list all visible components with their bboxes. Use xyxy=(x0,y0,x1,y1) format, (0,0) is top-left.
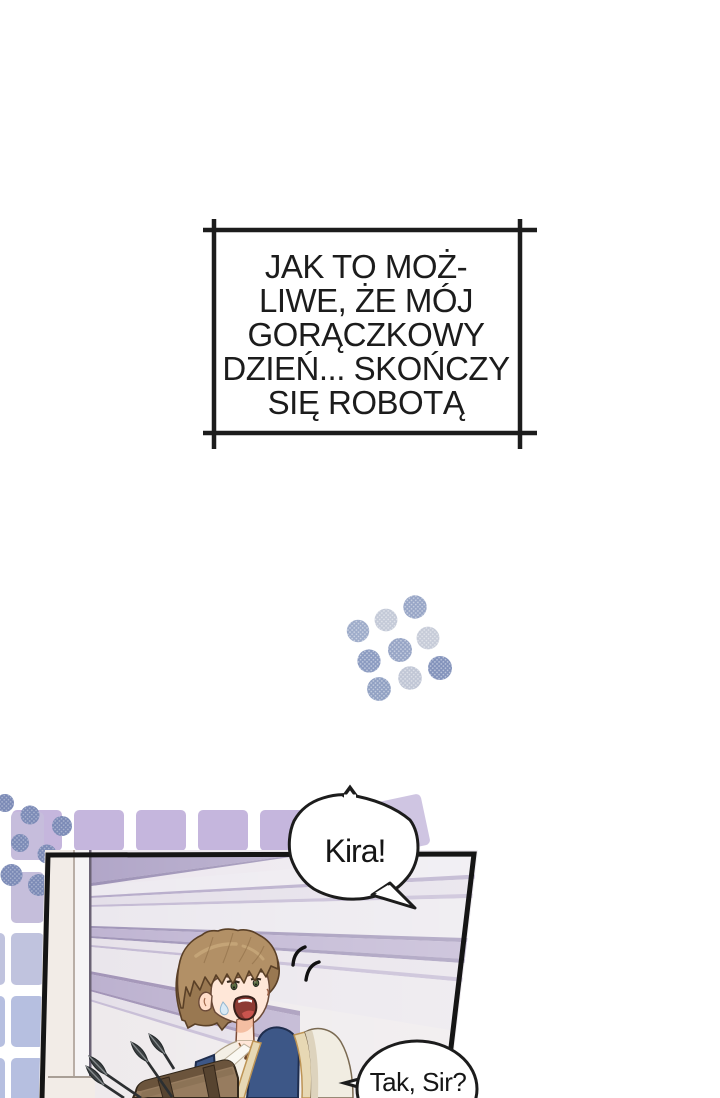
svg-text:Tak, Sir?: Tak, Sir? xyxy=(370,1067,467,1097)
svg-text:Kira!: Kira! xyxy=(325,833,386,869)
